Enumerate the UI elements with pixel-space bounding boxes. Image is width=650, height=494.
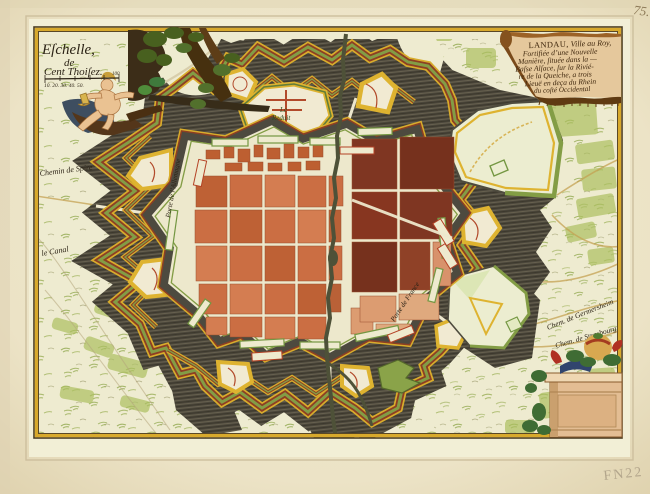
svg-text:10. 20. 30. 40. 50.: 10. 20. 30. 40. 50. (44, 82, 84, 89)
svg-text:Reduit: Reduit (271, 114, 291, 122)
svg-text:Cent Thoiſez.: Cent Thoiſez. (44, 66, 103, 78)
svg-text:Eſchelle,: Eſchelle, (41, 42, 95, 58)
svg-text:Le: Le (279, 106, 287, 114)
svg-text:75.: 75. (633, 2, 650, 19)
svg-text:100: 100 (112, 72, 120, 77)
